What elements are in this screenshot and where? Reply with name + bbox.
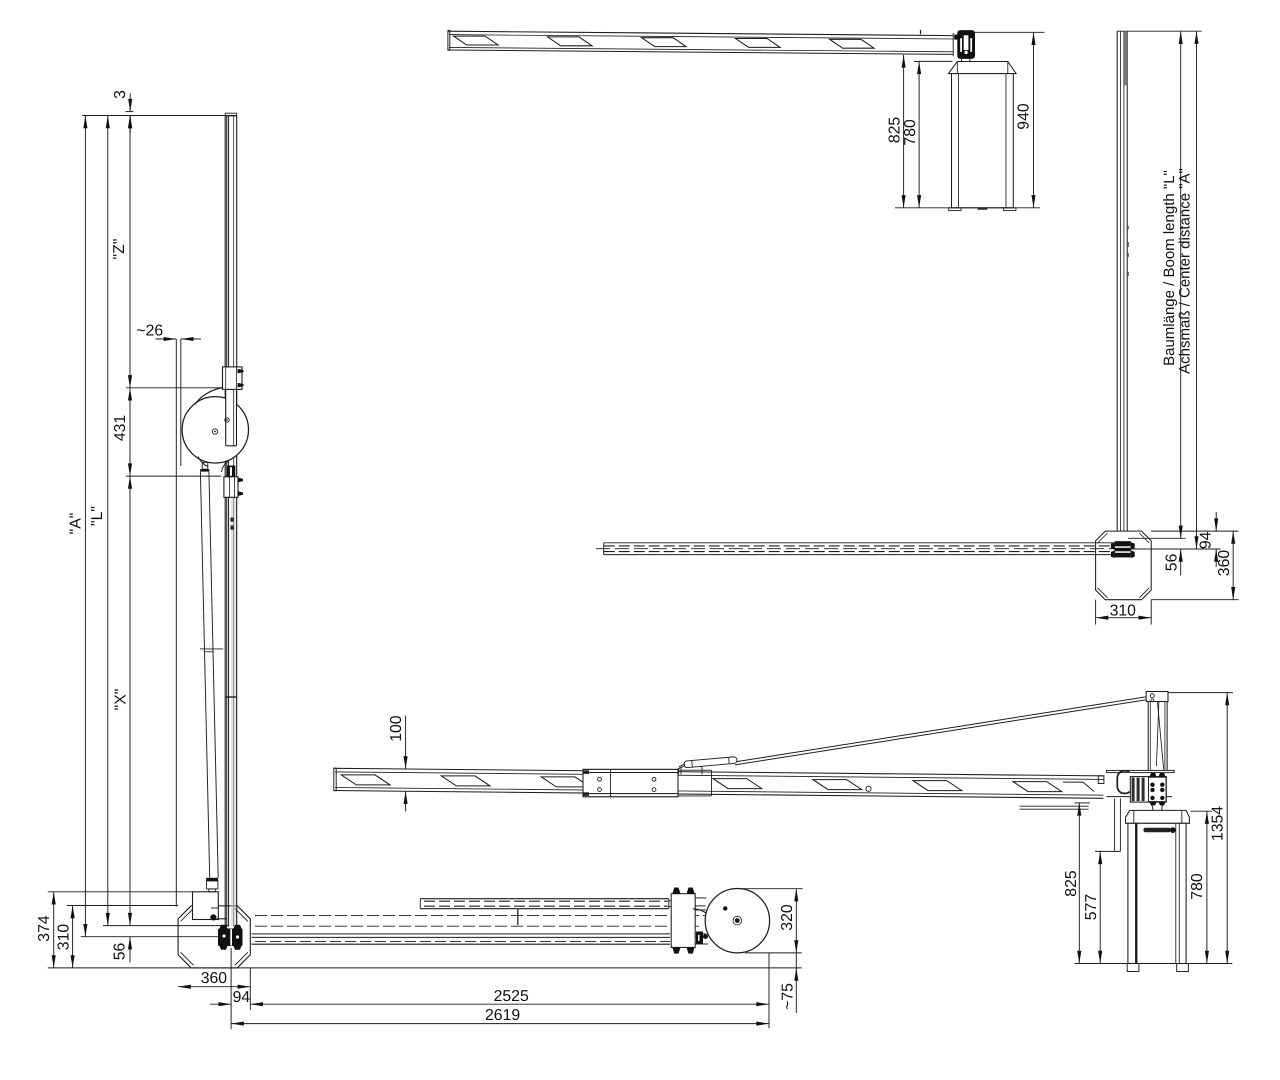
svg-text:374: 374	[36, 915, 53, 942]
svg-text:94: 94	[233, 989, 251, 1006]
svg-text:320: 320	[779, 904, 796, 931]
svg-text:Achsmaß / Center distance "A": Achsmaß / Center distance "A"	[1176, 168, 1193, 374]
svg-text:~26: ~26	[136, 323, 163, 340]
svg-text:1354: 1354	[1209, 806, 1226, 841]
svg-text:2619: 2619	[485, 1007, 520, 1024]
svg-text:940: 940	[1016, 103, 1033, 130]
svg-text:"Z": "Z"	[111, 239, 128, 260]
svg-text:310: 310	[1110, 602, 1137, 619]
svg-text:310: 310	[55, 924, 72, 951]
svg-text:825: 825	[1063, 870, 1080, 897]
svg-text:100: 100	[388, 715, 405, 742]
svg-text:~75: ~75	[779, 983, 796, 1010]
svg-text:94: 94	[1197, 531, 1214, 549]
svg-text:360: 360	[201, 970, 228, 987]
svg-text:780: 780	[902, 119, 919, 146]
svg-text:3: 3	[112, 90, 129, 99]
svg-text:56: 56	[1163, 553, 1180, 571]
svg-text:"X": "X"	[112, 689, 129, 711]
svg-text:2525: 2525	[494, 988, 529, 1005]
svg-text:"L": "L"	[89, 506, 106, 526]
svg-text:780: 780	[1189, 873, 1206, 900]
svg-text:"A": "A"	[68, 513, 85, 535]
svg-text:577: 577	[1083, 894, 1100, 920]
svg-text:360: 360	[1216, 550, 1233, 577]
svg-text:56: 56	[112, 943, 129, 961]
svg-text:431: 431	[112, 415, 129, 442]
